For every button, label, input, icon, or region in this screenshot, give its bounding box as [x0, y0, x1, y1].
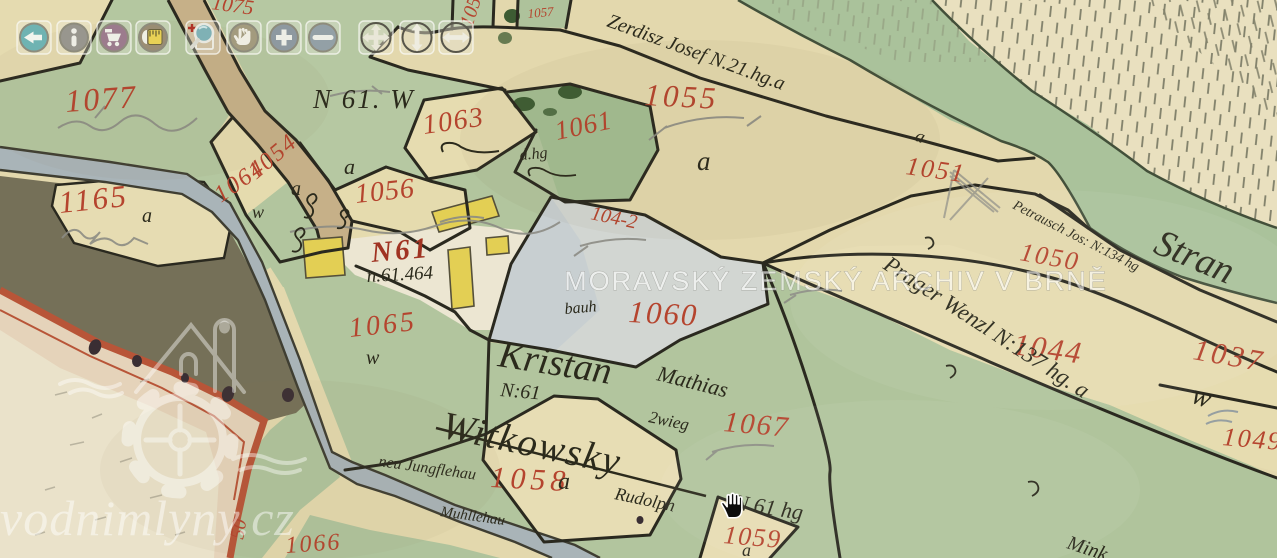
svg-text:a: a: [558, 469, 570, 495]
svg-text:1060: 1060: [628, 294, 700, 333]
svg-text:w: w: [366, 347, 380, 369]
svg-text:1165: 1165: [57, 178, 130, 220]
svg-text:a: a: [344, 154, 355, 179]
svg-text:1057: 1057: [527, 4, 555, 21]
svg-text:bauh: bauh: [564, 298, 597, 318]
svg-text:a: a: [291, 178, 301, 200]
svg-text:vodnimlyny.cz: vodnimlyny.cz: [0, 490, 295, 546]
svg-text:w: w: [252, 202, 264, 222]
svg-text:MORAVSKÝ ZEMSKÝ ARCHIV V BRNĚ: MORAVSKÝ ZEMSKÝ ARCHIV V BRNĚ: [564, 265, 1108, 296]
svg-text:n.61.464: n.61.464: [366, 263, 434, 287]
svg-text:1049: 1049: [1221, 422, 1277, 456]
svg-text:N:61: N:61: [499, 379, 542, 404]
svg-text:1056: 1056: [353, 173, 416, 210]
svg-text:a: a: [142, 205, 152, 227]
